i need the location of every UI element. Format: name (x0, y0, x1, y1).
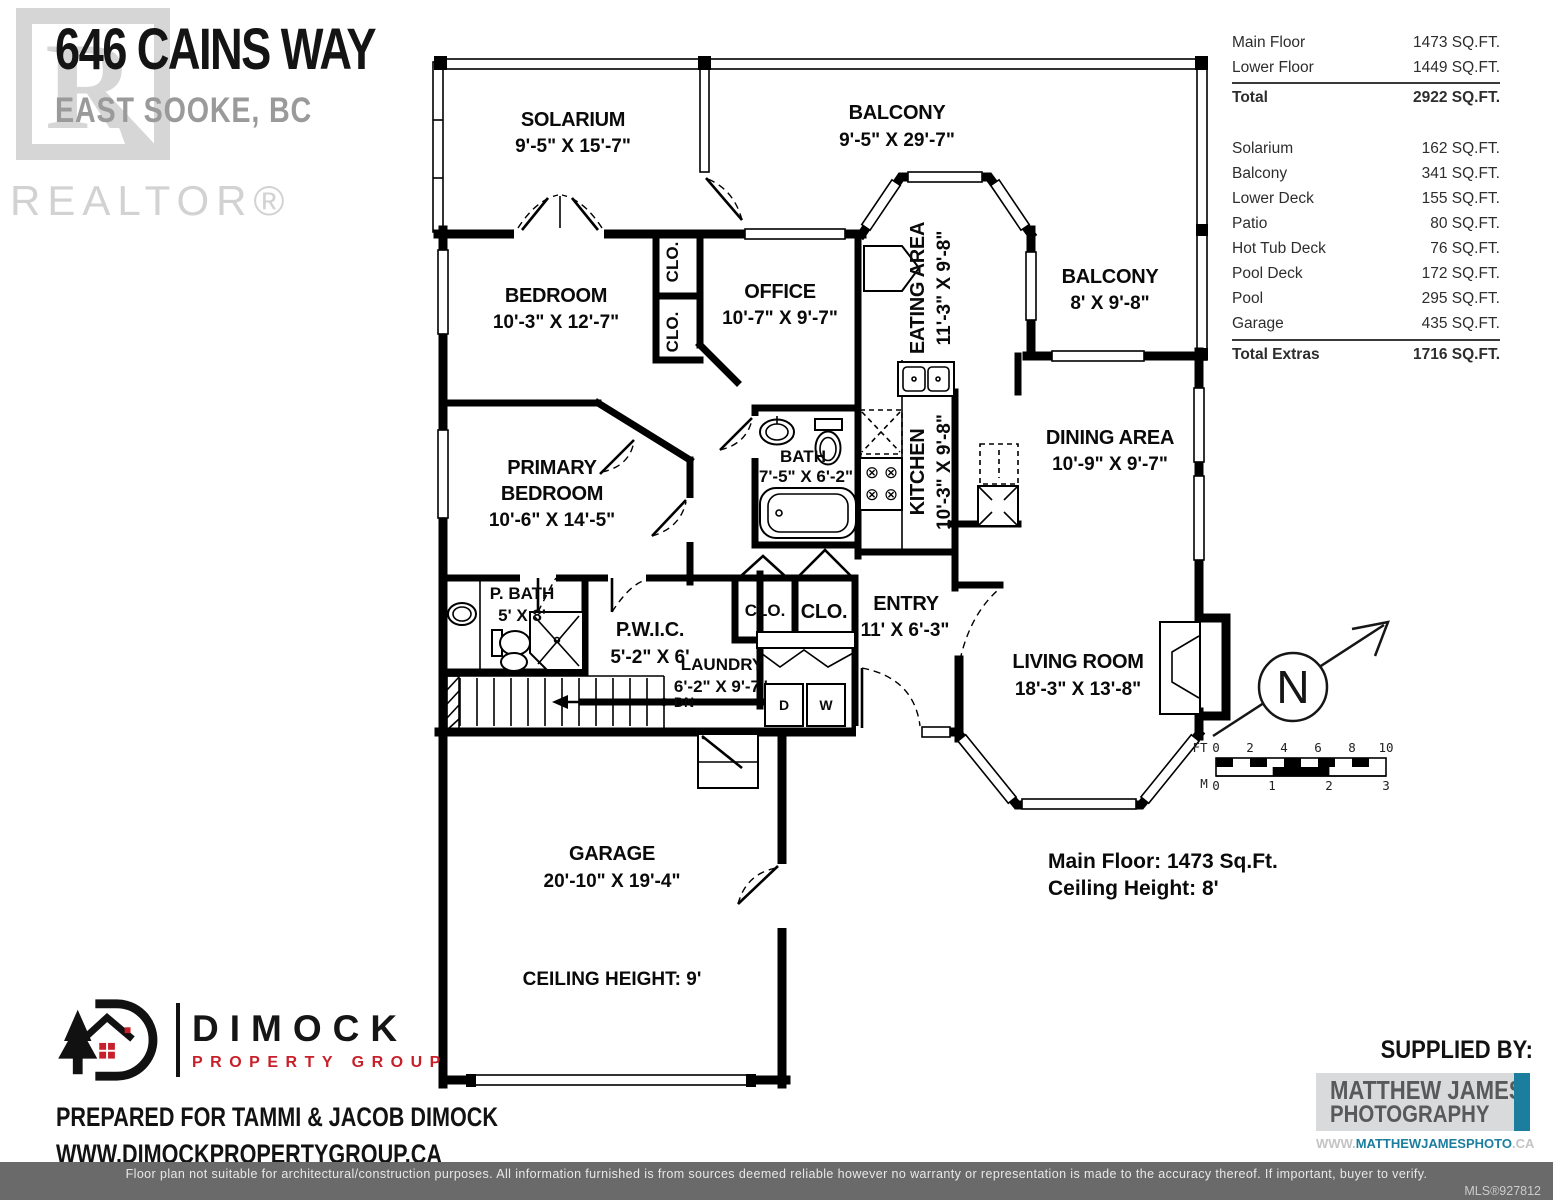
bay-window (991, 180, 1029, 230)
scale-tick: 1 (1268, 778, 1276, 793)
entry-sidelite-window (922, 727, 950, 737)
pbath-toilet (500, 631, 530, 655)
room-dims-balcony-right: 8' X 9'-8" (1070, 293, 1149, 314)
row-value: 1473 SQ.FT. (1413, 34, 1500, 52)
stairs-down-label: DN (674, 694, 694, 710)
dimock-name: DIMOCK (192, 1008, 448, 1050)
closet-label: CLO. (801, 601, 848, 623)
table-row: Balcony 341 SQ.FT. (1232, 162, 1500, 187)
row-value: 155 SQ.FT. (1422, 190, 1500, 208)
divider (176, 1003, 180, 1077)
room-dims-eating: 11'-3" X 9'-8" (934, 231, 955, 346)
bath-door (720, 418, 752, 450)
closet-label: CLO. (745, 601, 786, 620)
logo-accent-bar (1514, 1073, 1530, 1131)
scale-tick: 3 (1382, 778, 1390, 793)
north-compass: N (1213, 622, 1388, 736)
room-label-primary-2: BEDROOM (501, 483, 603, 505)
scale-tick: 0 (1212, 778, 1220, 793)
scale-bar: FT 0 2 4 6 8 10 M 0 1 2 3 (1192, 740, 1393, 793)
supplier-name-line1: MATTHEW JAMES (1330, 1077, 1524, 1103)
bay-window (862, 180, 900, 230)
row-label: Pool Deck (1232, 265, 1303, 283)
scale-m-label: M (1200, 776, 1208, 791)
prepared-for-text: PREPARED FOR TAMMI & JACOB DIMOCK (56, 1102, 498, 1133)
room-label-balcony-right: BALCONY (1062, 266, 1160, 288)
bedroom-window (438, 250, 448, 334)
row-label: Solarium (1232, 140, 1293, 158)
primary-window (438, 430, 448, 518)
laundry-counter (757, 632, 855, 648)
entry-living-opening (960, 590, 998, 660)
table-row: Main Floor 1473 SQ.FT. (1232, 30, 1500, 55)
page-subtitle: EAST SOOKE, BC (55, 91, 391, 131)
room-label-kitchen: KITCHEN (907, 429, 929, 516)
row-value: 162 SQ.FT. (1422, 140, 1500, 158)
row-value: 295 SQ.FT. (1422, 290, 1500, 308)
closet-label: CLO. (663, 312, 682, 353)
room-dims-pwic: 5'-2" X 6' (610, 647, 689, 668)
bay-window (958, 735, 1016, 803)
room-label-pbath: P. BATH (490, 584, 555, 603)
balcony-door (706, 178, 742, 220)
table-row: Hot Tub Deck 76 SQ.FT. (1232, 237, 1500, 262)
closet-label: CLO. (663, 242, 682, 283)
eating-side-window (1026, 252, 1036, 320)
room-dims-bath: 7'-5" X 6'-2" (759, 467, 853, 486)
primary-door (652, 500, 686, 536)
table-row: Solarium 162 SQ.FT. (1232, 137, 1500, 162)
room-label-pwic: P.W.I.C. (616, 619, 684, 641)
title-block: 646 CAINS WAY EAST SOOKE, BC (55, 16, 465, 131)
dimock-tagline: PROPERTY GROUP (192, 1054, 448, 1072)
room-dims-entry: 11' X 6'-3" (861, 620, 950, 641)
table-row: Patio 80 SQ.FT. (1232, 212, 1500, 237)
table-total-row: Total Extras 1716 SQ.FT. (1232, 339, 1500, 368)
solarium-divider-wall (700, 64, 709, 172)
room-label-garage: GARAGE (569, 843, 655, 865)
fireplace-bump-wall (1199, 618, 1226, 716)
scale-tick: 2 (1246, 740, 1254, 755)
office-window (745, 229, 845, 239)
dining-window (1052, 351, 1144, 361)
url-prefix: WWW. (1316, 1136, 1356, 1151)
fireplace (1160, 622, 1200, 714)
row-value: 172 SQ.FT. (1422, 265, 1500, 283)
page-title: 646 CAINS WAY (55, 16, 375, 83)
dining-side-window (1194, 388, 1204, 462)
room-dims-kitchen: 10'-3" X 9'-8" (934, 414, 955, 530)
row-label: Total (1232, 89, 1268, 107)
row-label: Patio (1232, 215, 1267, 233)
scale-tick: 2 (1325, 778, 1333, 793)
table-row: Pool Deck 172 SQ.FT. (1232, 262, 1500, 287)
table-row: Lower Deck 155 SQ.FT. (1232, 187, 1500, 212)
room-label-bath: BATH (780, 447, 826, 466)
supplier-name-line2: PHOTOGRAPHY (1330, 1103, 1524, 1127)
supplier-website: WWW.MATTHEWJAMESPHOTO.CA (1316, 1136, 1530, 1151)
room-label-bedroom: BEDROOM (505, 285, 607, 307)
floor-plan-page: R REALTOR® 646 CAINS WAY EAST SOOKE, BC … (0, 0, 1553, 1200)
row-value: 2922 SQ.FT. (1413, 89, 1500, 107)
row-value: 1716 SQ.FT. (1413, 346, 1500, 364)
room-label-laundry: LAUNDRY (681, 655, 764, 674)
room-dims-solarium: 9'-5" X 15'-7" (515, 136, 631, 157)
row-label: Balcony (1232, 165, 1287, 183)
row-value: 1449 SQ.FT. (1413, 59, 1500, 77)
row-label: Main Floor (1232, 34, 1305, 52)
bay-window (1141, 735, 1199, 803)
row-label: Garage (1232, 315, 1284, 333)
main-floor-note: Main Floor: 1473 Sq.Ft. (1048, 850, 1278, 873)
scale-ft-label: FT (1192, 740, 1208, 755)
room-dims-pbath: 5' X 8' (498, 606, 546, 625)
toilet-tank (815, 419, 842, 430)
footer-bar: Floor plan not suitable for architectura… (0, 1162, 1553, 1200)
room-label-solarium: SOLARIUM (521, 109, 625, 131)
room-dims-dining: 10'-9" X 9'-7" (1052, 454, 1168, 475)
area-table: Main Floor 1473 SQ.FT. Lower Floor 1449 … (1232, 30, 1500, 367)
table-row: Garage 435 SQ.FT. (1232, 312, 1500, 337)
row-label: Pool (1232, 290, 1263, 308)
row-value: 80 SQ.FT. (1430, 215, 1500, 233)
supplier-branding: SUPPLIED BY: MATTHEW JAMES PHOTOGRAPHY W… (1250, 1036, 1533, 1151)
ceiling-height-note: Ceiling Height: 8' (1048, 877, 1219, 900)
garage-landing (698, 734, 758, 788)
washer-label: W (819, 697, 833, 713)
table-row: Pool 295 SQ.FT. (1232, 287, 1500, 312)
scale-tick: 4 (1280, 740, 1288, 755)
room-dims-living: 18'-3" X 13'-8" (1015, 679, 1141, 700)
row-label: Total Extras (1232, 346, 1320, 364)
scale-tick: 10 (1378, 740, 1393, 755)
kitchen-east-walls (951, 356, 1018, 588)
svg-text:⊗: ⊗ (865, 463, 879, 482)
dimock-branding: DIMOCK PROPERTY GROUP PREPARED FOR TAMMI… (56, 996, 609, 1170)
svg-text:⊗: ⊗ (865, 485, 879, 504)
garage-side-door (738, 866, 778, 904)
matthew-james-logo: MATTHEW JAMES PHOTOGRAPHY (1316, 1073, 1530, 1131)
living-side-window (1194, 476, 1204, 560)
mls-number: MLS®927812 (1464, 1184, 1541, 1198)
bay-window (1022, 799, 1136, 809)
balcony-railing (438, 59, 1207, 69)
room-dims-balcony-top: 9'-5" X 29'-7" (839, 130, 955, 151)
row-label: Lower Floor (1232, 59, 1314, 77)
room-label-dining: DINING AREA (1046, 427, 1174, 449)
disclaimer-text: Floor plan not suitable for architectura… (0, 1167, 1553, 1181)
room-label-entry: ENTRY (873, 593, 940, 615)
room-dims-garage: 20'-10" X 19'-4" (544, 871, 681, 892)
url-main: MATTHEWJAMESPHOTO (1356, 1136, 1512, 1151)
room-label-balcony-top: BALCONY (849, 102, 947, 124)
url-suffix: .CA (1512, 1136, 1534, 1151)
room-dims-bedroom: 10'-3" X 12'-7" (493, 312, 619, 333)
bedroom-door (600, 440, 634, 474)
room-label-office: OFFICE (744, 281, 816, 303)
scale-tick: 6 (1314, 740, 1322, 755)
room-label-eating: EATING AREA (907, 222, 929, 354)
dimock-logo-icon (56, 996, 164, 1084)
room-dims-office: 10'-7" X 9'-7" (722, 308, 838, 329)
closet-door-peak (799, 550, 851, 576)
row-label: Hot Tub Deck (1232, 240, 1326, 258)
table-row: Lower Floor 1449 SQ.FT. (1232, 55, 1500, 80)
room-label-living: LIVING ROOM (1012, 651, 1143, 673)
bay-window (908, 172, 982, 182)
garage-ceiling-note: CEILING HEIGHT: 9' (523, 969, 702, 990)
balcony-right-railing (1197, 62, 1207, 360)
table-total-row: Total 2922 SQ.FT. (1232, 82, 1500, 111)
north-label: N (1276, 661, 1309, 713)
scale-tick: 8 (1348, 740, 1356, 755)
svg-text:⊗: ⊗ (884, 463, 898, 482)
room-label-primary-1: PRIMARY (507, 457, 597, 479)
room-dims-primary: 10'-6" X 14'-5" (489, 510, 615, 531)
scale-tick: 0 (1212, 740, 1220, 755)
row-value: 435 SQ.FT. (1422, 315, 1500, 333)
row-value: 341 SQ.FT. (1422, 165, 1500, 183)
dryer-label: D (779, 697, 789, 713)
supplied-by-label: SUPPLIED BY: (1284, 1036, 1533, 1065)
row-label: Lower Deck (1232, 190, 1314, 208)
row-value: 76 SQ.FT. (1430, 240, 1500, 258)
svg-text:⊗: ⊗ (884, 485, 898, 504)
office-corner-wall (700, 345, 737, 382)
